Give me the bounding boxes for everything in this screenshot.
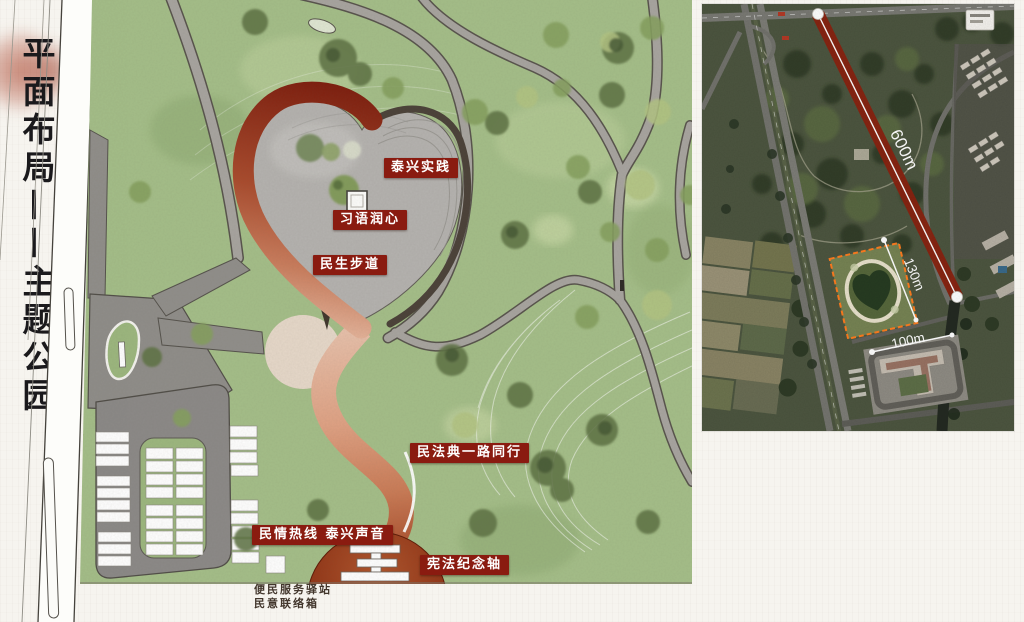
label-taixing-practice: 泰兴实践 (384, 158, 458, 178)
satellite-inset: 600m 130m 100m (702, 4, 1014, 431)
label-civil-code-road: 民法典一路同行 (410, 443, 529, 463)
sat-grain (702, 4, 1014, 431)
plan-grain-texture (80, 0, 694, 584)
label-xiyu-runxin: 习语润心 (333, 210, 407, 230)
presentation-board: { "board": { "title": "平面布局——主题公园" }, "p… (0, 0, 1024, 622)
label-minsheng-walkway: 民生步道 (313, 255, 387, 275)
satellite-map: 600m 130m 100m (702, 4, 1014, 431)
caption-suggestion-box: 民意联络箱 (254, 598, 319, 611)
caption-service-station: 便民服务驿站 (254, 584, 332, 597)
label-constitution-axis: 宪法纪念轴 (420, 555, 509, 575)
label-hotline-voice: 民情热线 泰兴声音 (252, 525, 393, 545)
